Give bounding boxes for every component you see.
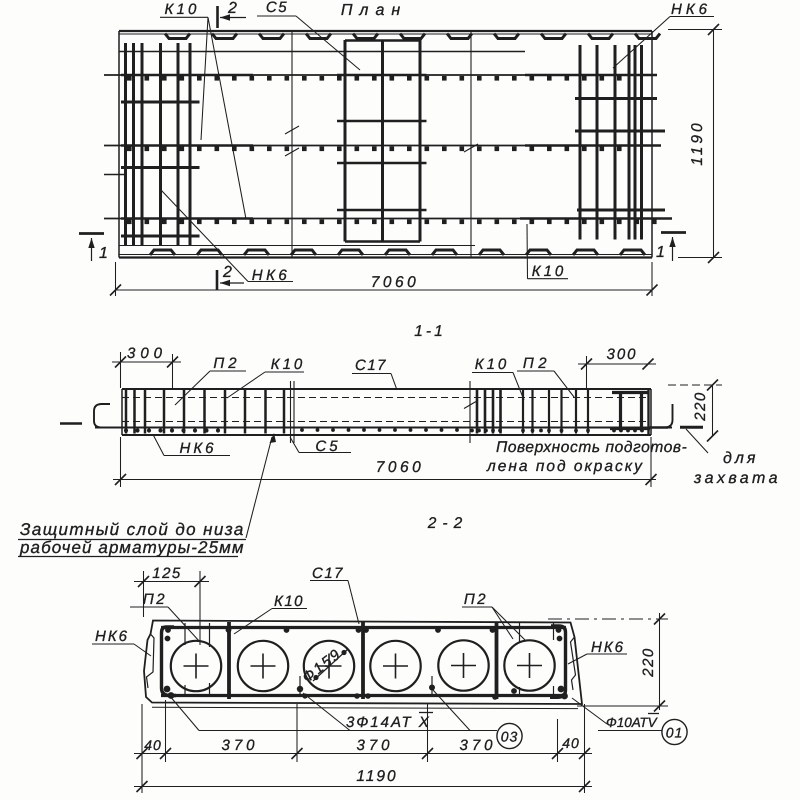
svg-text:для: для [723, 450, 758, 467]
svg-text:2: 2 [227, 0, 238, 17]
svg-text:1190: 1190 [689, 120, 706, 165]
svg-text:захвата: захвата [693, 470, 781, 487]
svg-text:С5: С5 [266, 0, 288, 16]
svg-text:К10: К10 [274, 593, 304, 610]
svg-text:03: 03 [501, 729, 519, 745]
svg-text:1-1: 1-1 [414, 323, 445, 340]
svg-text:01: 01 [666, 725, 684, 741]
svg-text:370: 370 [221, 737, 258, 754]
svg-text:7060: 7060 [376, 459, 424, 476]
svg-text:К10: К10 [475, 356, 510, 373]
svg-text:Поверхность подготов-: Поверхность подготов- [496, 439, 687, 456]
svg-text:220: 220 [692, 391, 709, 422]
svg-text:Защитный слой до низа: Защитный слой до низа [20, 520, 245, 539]
svg-text:П2: П2 [213, 355, 240, 372]
svg-text:рабочей арматуры-25мм: рабочей арматуры-25мм [19, 538, 245, 557]
svg-text:П2: П2 [143, 591, 167, 608]
svg-text:40: 40 [562, 735, 580, 751]
svg-text:лена под окраску: лена под окраску [486, 458, 644, 475]
svg-text:1: 1 [656, 244, 666, 261]
svg-text:40: 40 [144, 737, 162, 753]
svg-text:370: 370 [459, 737, 496, 754]
svg-text:125: 125 [152, 565, 182, 582]
svg-text:П2: П2 [523, 355, 551, 372]
svg-text:220: 220 [640, 647, 657, 678]
svg-text:К10: К10 [532, 263, 567, 280]
svg-text:Ф10АТV: Ф10АТV [606, 715, 659, 730]
svg-text:К10: К10 [164, 1, 199, 18]
svg-text:НК6: НК6 [179, 440, 216, 457]
svg-text:1190: 1190 [356, 768, 397, 785]
svg-text:П2: П2 [464, 591, 488, 608]
svg-text:2: 2 [222, 264, 233, 281]
svg-text:300: 300 [127, 345, 167, 362]
svg-text:НК6: НК6 [95, 628, 129, 645]
svg-text:К10: К10 [271, 356, 306, 373]
svg-text:370: 370 [356, 737, 393, 754]
svg-text:1: 1 [99, 245, 109, 262]
svg-text:2-2: 2-2 [427, 515, 468, 532]
svg-text:300: 300 [606, 346, 637, 363]
svg-text:7060: 7060 [371, 274, 419, 291]
svg-text:НК6: НК6 [671, 1, 711, 18]
svg-text:С17: С17 [312, 565, 344, 582]
svg-text:3Ф14АТ Х: 3Ф14АТ Х [346, 714, 431, 731]
svg-text:План: План [341, 2, 407, 19]
svg-text:С17: С17 [355, 357, 387, 374]
